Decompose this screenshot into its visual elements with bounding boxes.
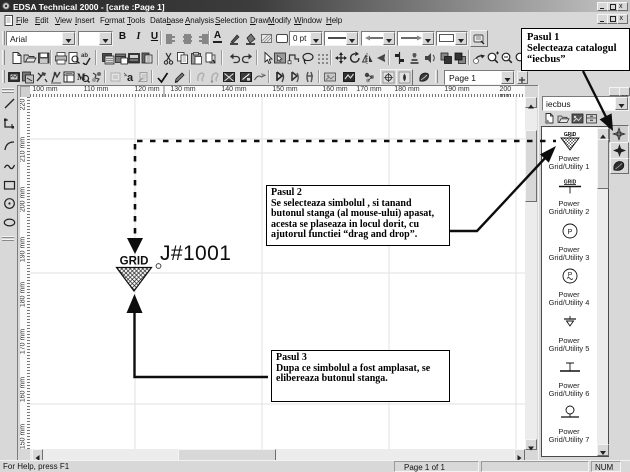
svg-text:J#1001: J#1001 bbox=[160, 242, 231, 265]
svg-text:GRID: GRID bbox=[120, 256, 149, 268]
